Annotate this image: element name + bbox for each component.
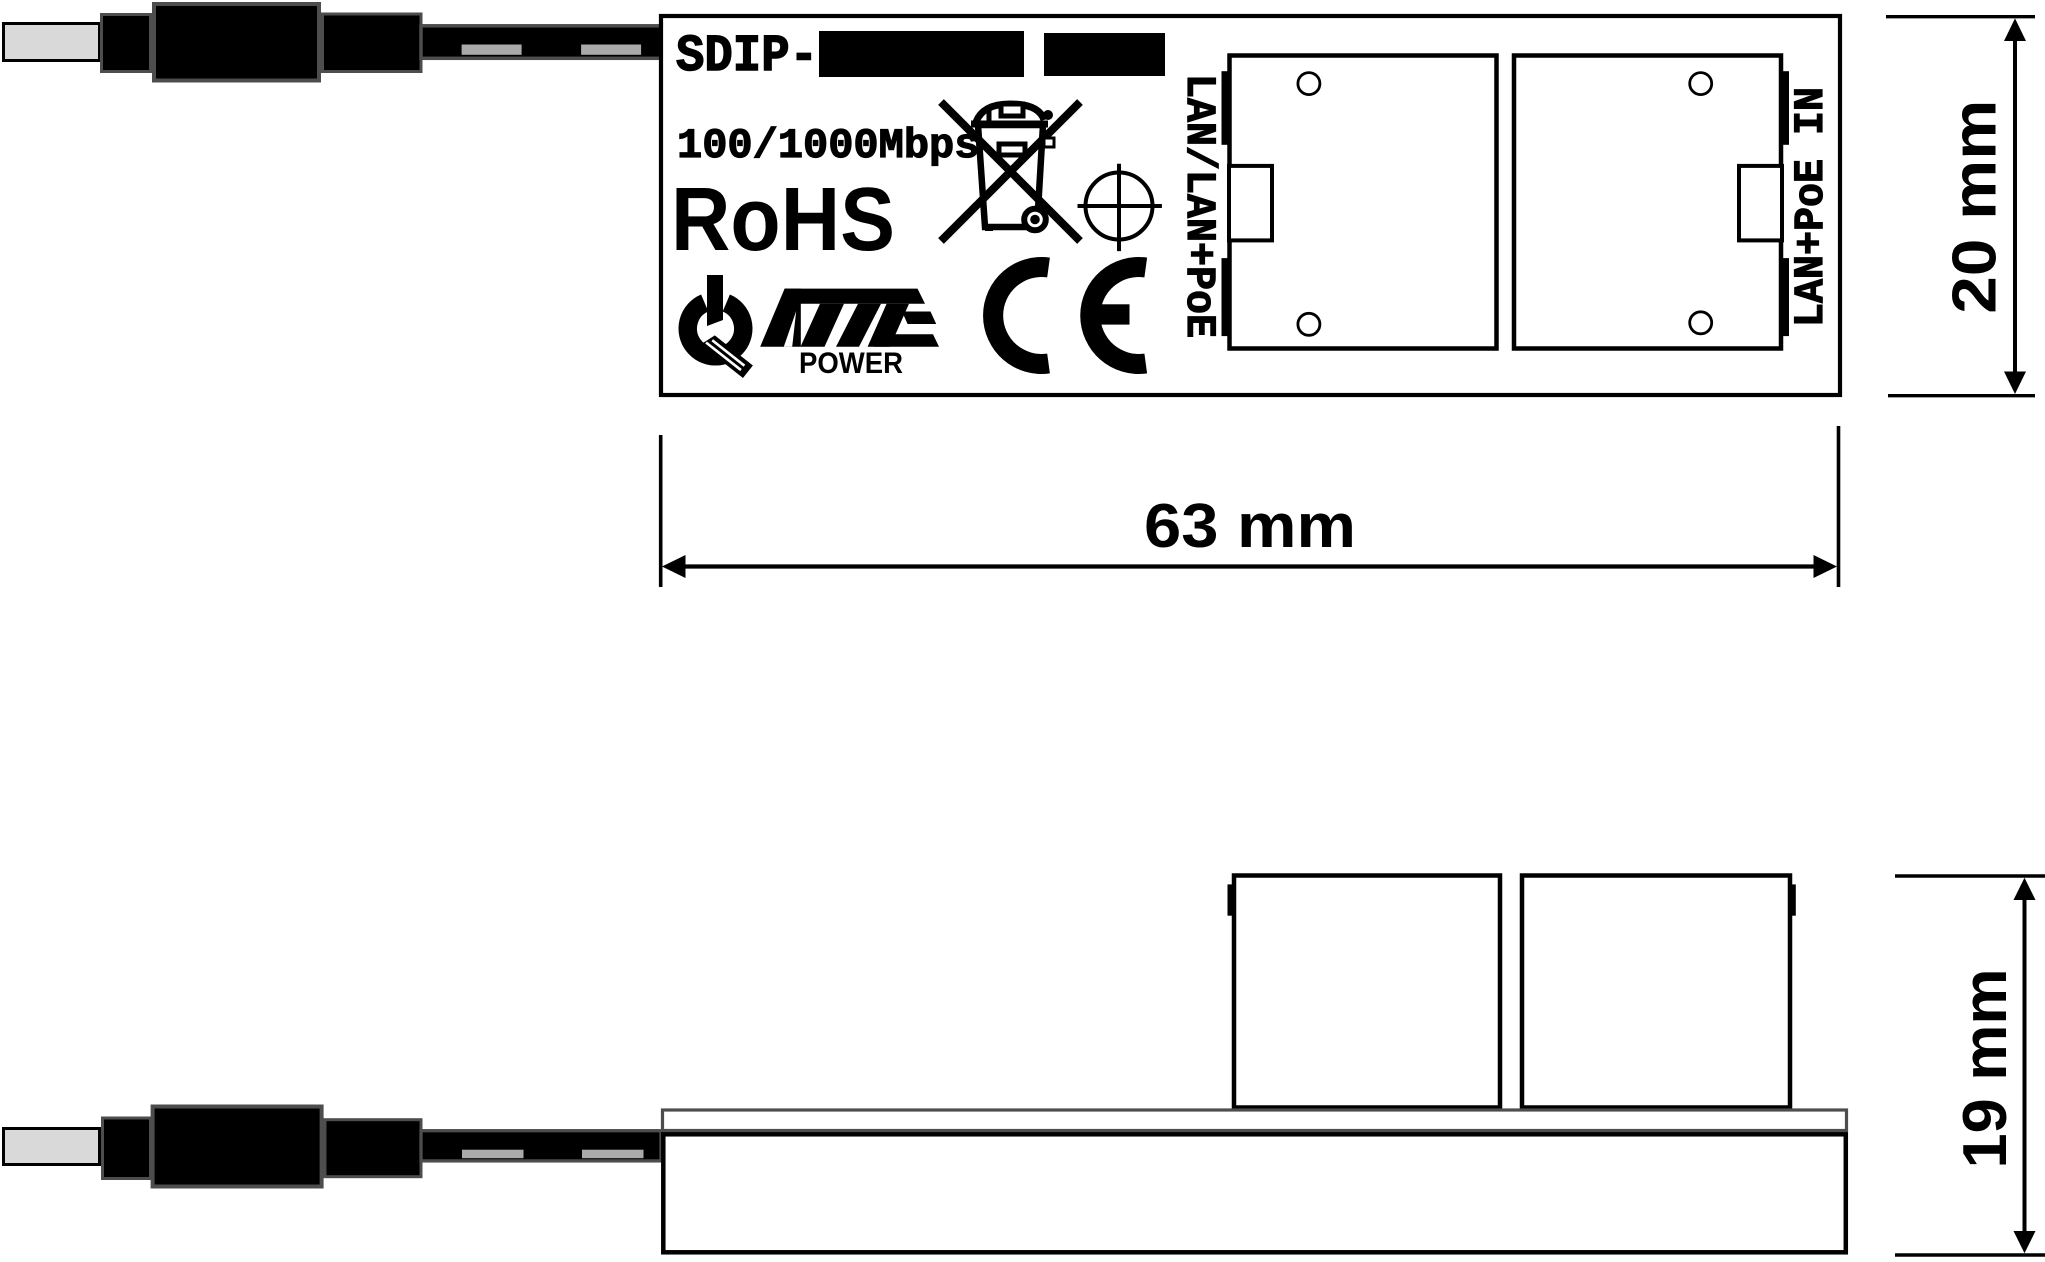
svg-text:20 mm: 20 mm bbox=[1941, 100, 2010, 314]
svg-text:LAN+PoE IN: LAN+PoE IN bbox=[1787, 87, 1835, 327]
svg-text:LAN/LAN+PoE: LAN/LAN+PoE bbox=[1175, 74, 1223, 338]
svg-text:POWER: POWER bbox=[799, 347, 903, 380]
svg-text:100/1000Mbps: 100/1000Mbps bbox=[677, 122, 979, 170]
svg-text:63 mm: 63 mm bbox=[1144, 492, 1356, 561]
svg-text:19 mm: 19 mm bbox=[1951, 969, 2020, 1169]
svg-text:RoHS: RoHS bbox=[671, 170, 895, 270]
svg-text:SDIP-: SDIP- bbox=[676, 27, 818, 86]
